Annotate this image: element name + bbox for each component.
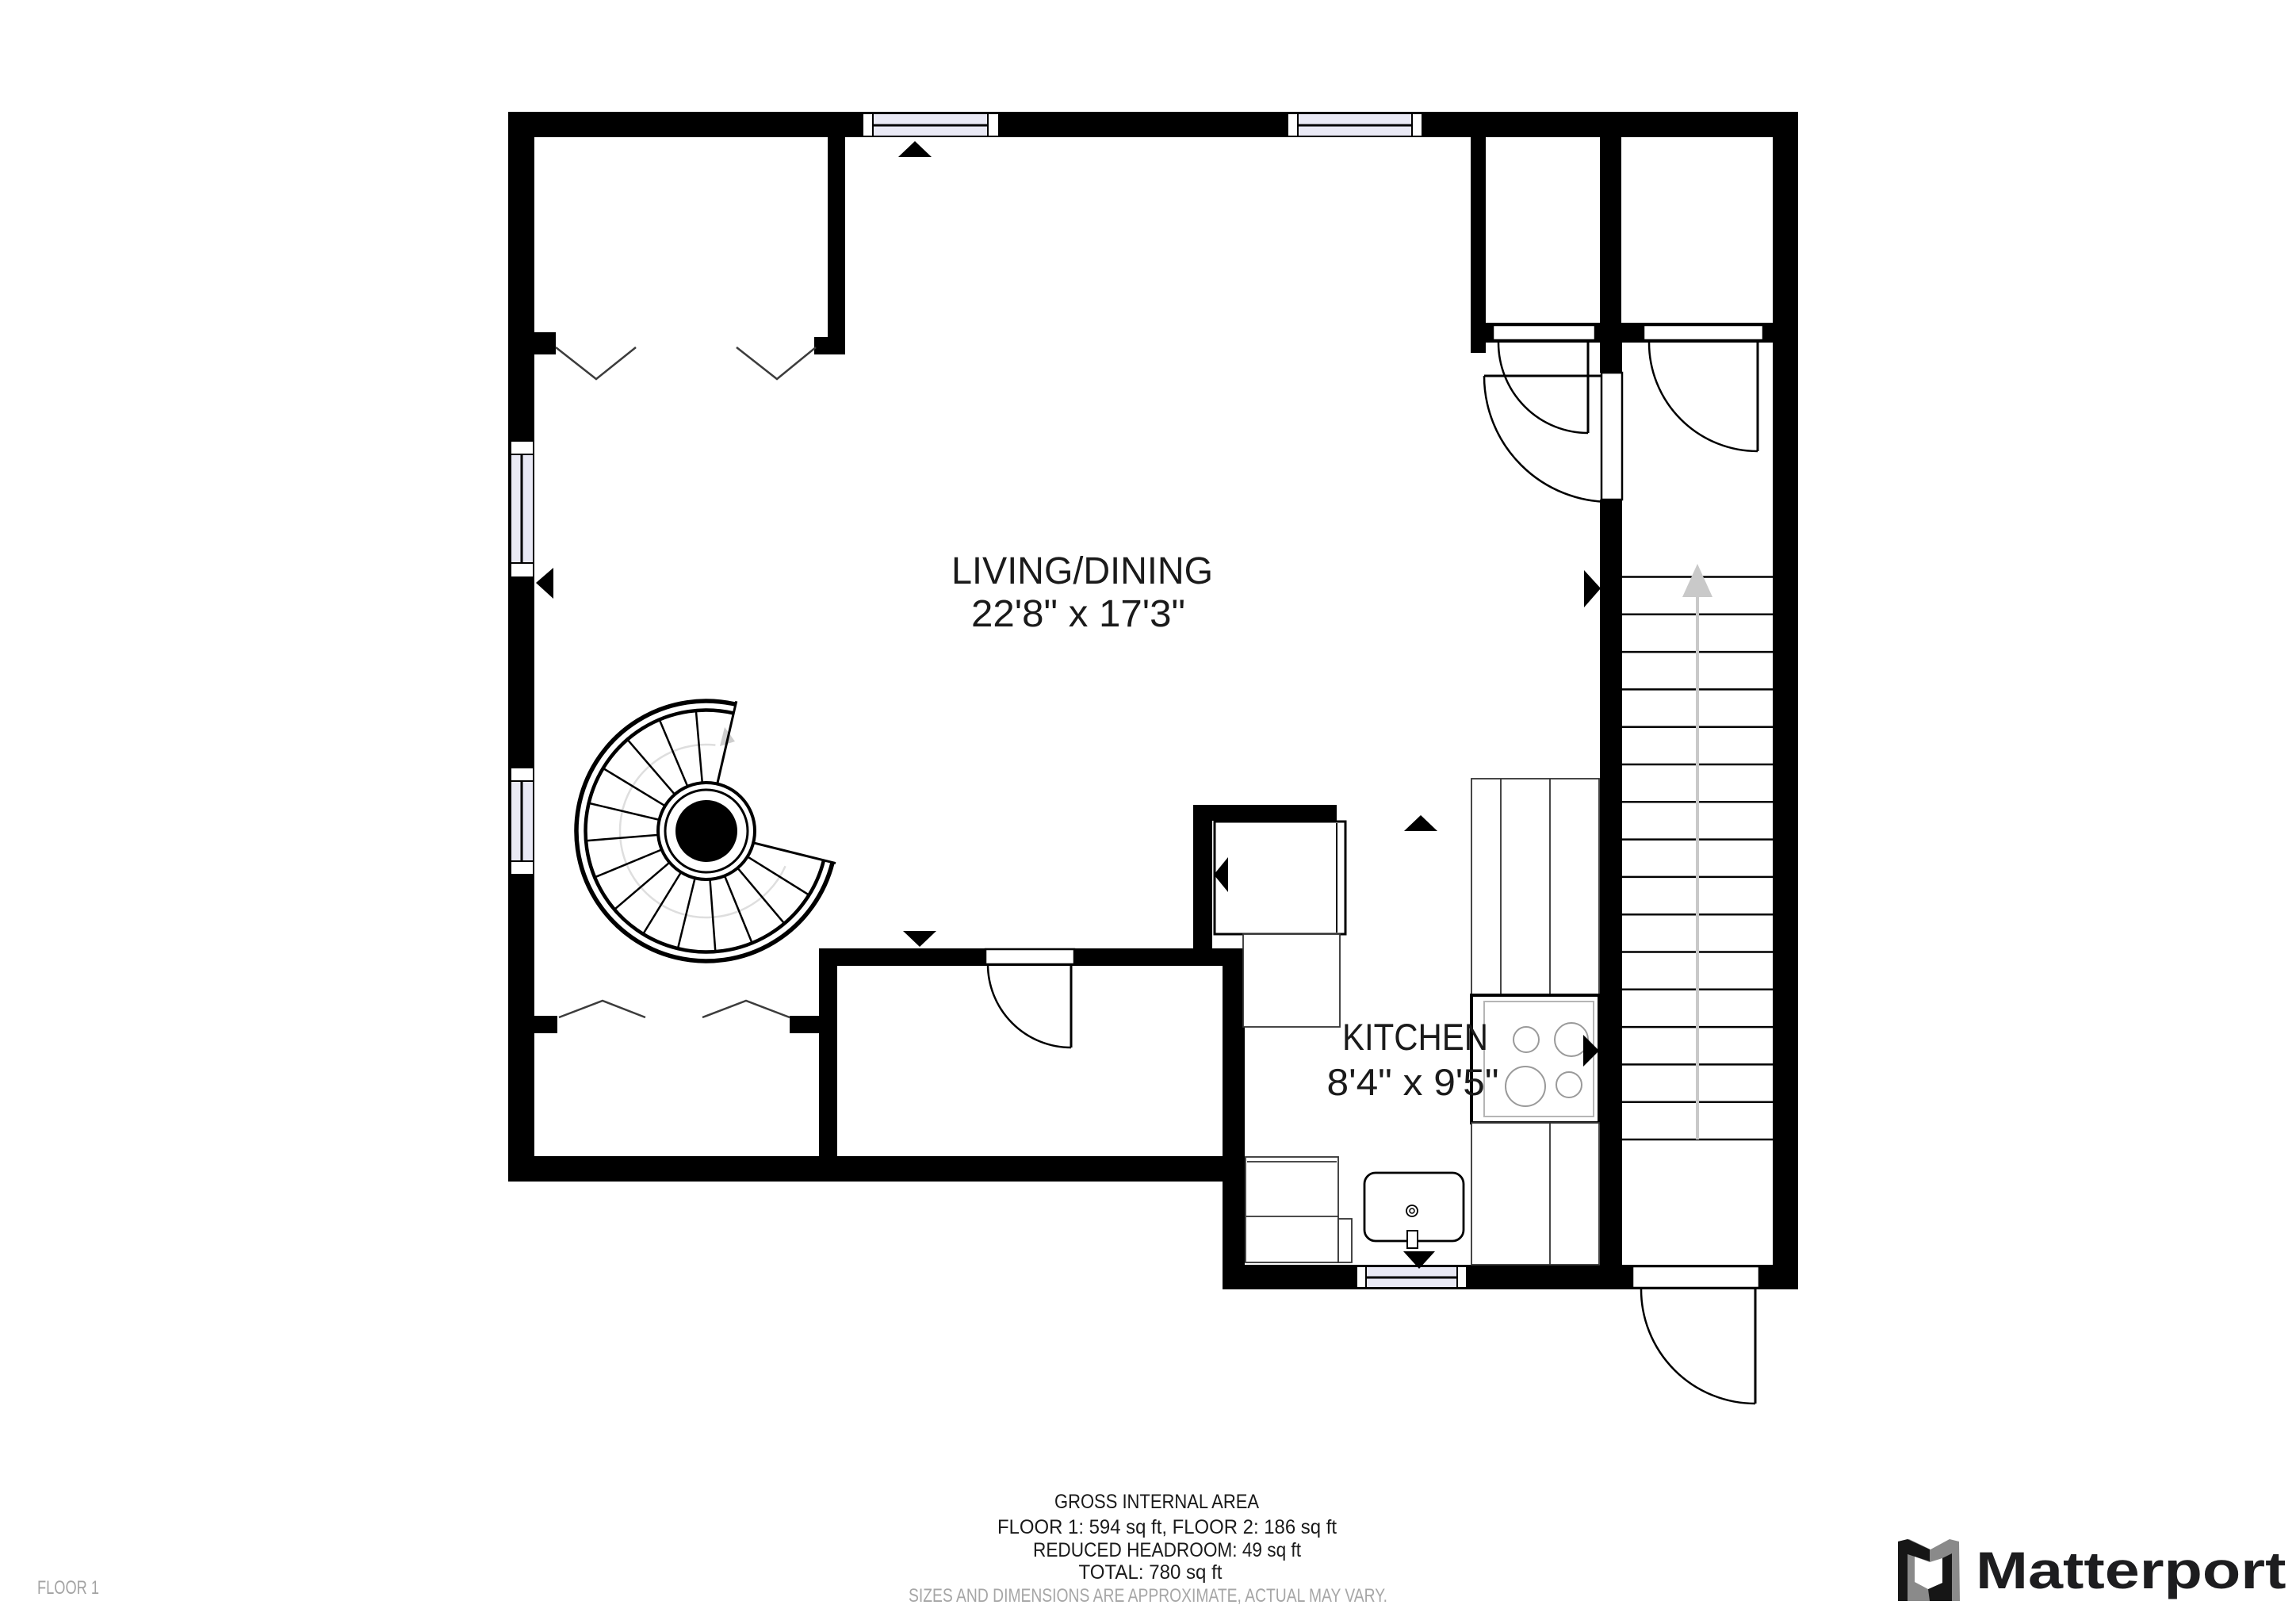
svg-text:FLOOR 1: FLOOR 1 <box>37 1577 99 1599</box>
svg-text:GROSS INTERNAL AREA: GROSS INTERNAL AREA <box>1054 1491 1259 1513</box>
svg-text:FLOOR 1: 594 sq ft, FLOOR 2: 1: FLOOR 1: 594 sq ft, FLOOR 2: 186 sq ft <box>997 1516 1337 1538</box>
svg-text:22'8" x 17'3": 22'8" x 17'3" <box>971 593 1185 635</box>
svg-text:SIZES AND DIMENSIONS ARE APPRO: SIZES AND DIMENSIONS ARE APPROXIMATE, AC… <box>909 1585 1387 1607</box>
svg-text:REDUCED HEADROOM: 49 sq ft: REDUCED HEADROOM: 49 sq ft <box>1033 1539 1301 1561</box>
svg-text:KITCHEN: KITCHEN <box>1342 1016 1488 1058</box>
svg-text:LIVING/DINING: LIVING/DINING <box>951 550 1213 592</box>
svg-text:TOTAL: 780 sq ft: TOTAL: 780 sq ft <box>1079 1561 1223 1584</box>
svg-text:Matterport: Matterport <box>1976 1542 2286 1599</box>
svg-text:8'4" x 9'5": 8'4" x 9'5" <box>1327 1061 1499 1103</box>
